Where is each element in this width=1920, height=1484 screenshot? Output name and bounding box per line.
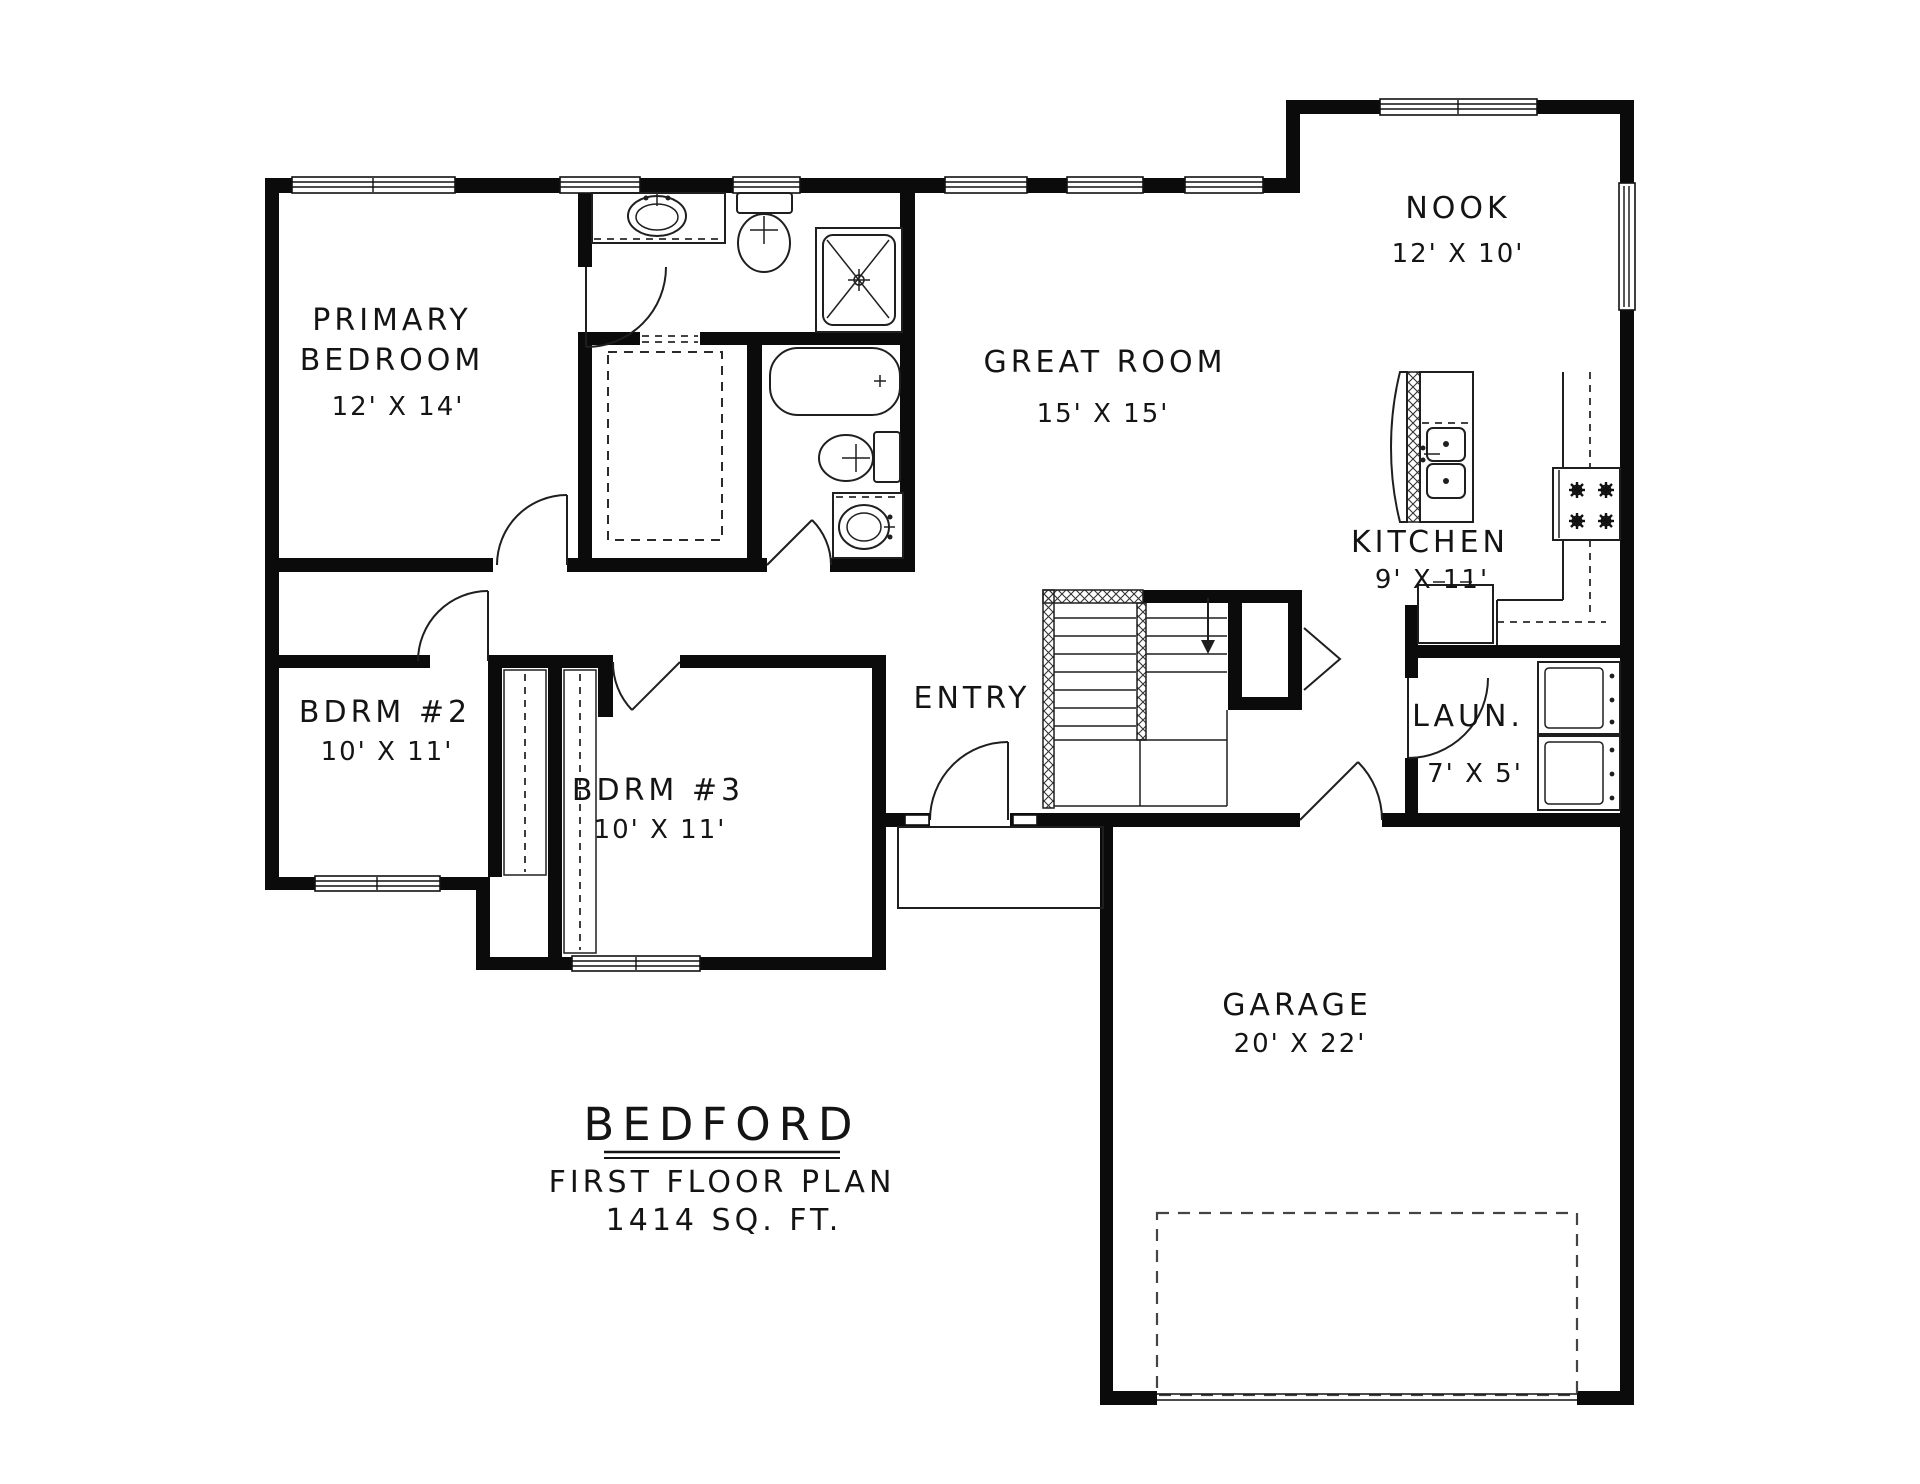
room-label-entry: ENTRY <box>914 681 1031 716</box>
range-stove <box>1553 468 1620 540</box>
dryer <box>1538 736 1620 810</box>
window <box>315 876 440 891</box>
door-bdrm3 <box>613 662 680 710</box>
door-bath2 <box>767 520 831 565</box>
pantry-bifold-door <box>1304 628 1340 690</box>
room-label-garage: GARAGE <box>1222 988 1372 1023</box>
room-dims-bdrm2: 10' X 11' <box>321 737 454 767</box>
room-dims-kitchen: 9' X 11' <box>1375 565 1489 595</box>
stair-down-arrow <box>1201 598 1215 654</box>
door-primary-bedroom <box>497 495 567 565</box>
room-dims-bdrm3: 10' X 11' <box>594 815 727 845</box>
room-dims-primary-bedroom: 12' X 14' <box>332 392 465 422</box>
room-dims-nook: 12' X 10' <box>1392 239 1525 269</box>
window <box>1380 99 1537 115</box>
bathtub <box>770 348 900 415</box>
room-label-bdrm2: BDRM #2 <box>299 695 471 730</box>
plan-subtitle: FIRST FLOOR PLAN <box>549 1165 896 1200</box>
window <box>733 177 800 193</box>
room-dims-great-room: 15' X 15' <box>1037 399 1170 429</box>
toilet-bath2 <box>819 432 900 482</box>
room-dims-garage: 20' X 22' <box>1234 1029 1367 1059</box>
kitchen-island <box>1391 372 1473 522</box>
door-bdrm2 <box>418 591 488 661</box>
window <box>945 177 1027 193</box>
room-label-great-room: GREAT ROOM <box>983 345 1226 380</box>
room-label-kitchen: KITCHEN <box>1351 525 1509 560</box>
floor-plan-canvas: PRIMARY BEDROOM 12' X 14' BDRM #2 10' X … <box>0 0 1920 1484</box>
plan-name: BEDFORD <box>583 1098 860 1151</box>
window <box>1067 177 1143 193</box>
room-dims-laundry: 7' X 5' <box>1427 759 1523 789</box>
vanity-sink-primary <box>592 193 725 243</box>
room-label-nook: NOOK <box>1405 191 1510 226</box>
floor-plan-svg: PRIMARY BEDROOM 12' X 14' BDRM #2 10' X … <box>0 0 1920 1484</box>
title-block: BEDFORD FIRST FLOOR PLAN 1414 SQ. FT. <box>549 1098 896 1238</box>
walk-in-closet <box>608 352 722 540</box>
plan-area: 1414 SQ. FT. <box>606 1203 843 1238</box>
window <box>560 177 640 193</box>
closet-bdrm3 <box>564 670 596 953</box>
window <box>1619 183 1635 310</box>
closet-bdrm2 <box>504 670 546 875</box>
window <box>572 956 700 971</box>
exterior-walls <box>265 100 1634 1405</box>
window <box>292 177 455 193</box>
room-label-primary-bedroom-line2: BEDROOM <box>300 343 485 378</box>
toilet-primary <box>737 193 792 272</box>
porch <box>898 827 1103 908</box>
shower <box>816 228 902 332</box>
garage-door <box>1157 1213 1577 1400</box>
staircase <box>1043 590 1227 808</box>
vanity-sink-bath2 <box>833 493 903 558</box>
room-label-primary-bedroom-line1: PRIMARY <box>312 303 471 338</box>
room-label-laundry: LAUN. <box>1412 699 1524 734</box>
room-label-bdrm3: BDRM #3 <box>572 773 744 808</box>
washer <box>1538 662 1620 734</box>
window <box>1185 177 1263 193</box>
